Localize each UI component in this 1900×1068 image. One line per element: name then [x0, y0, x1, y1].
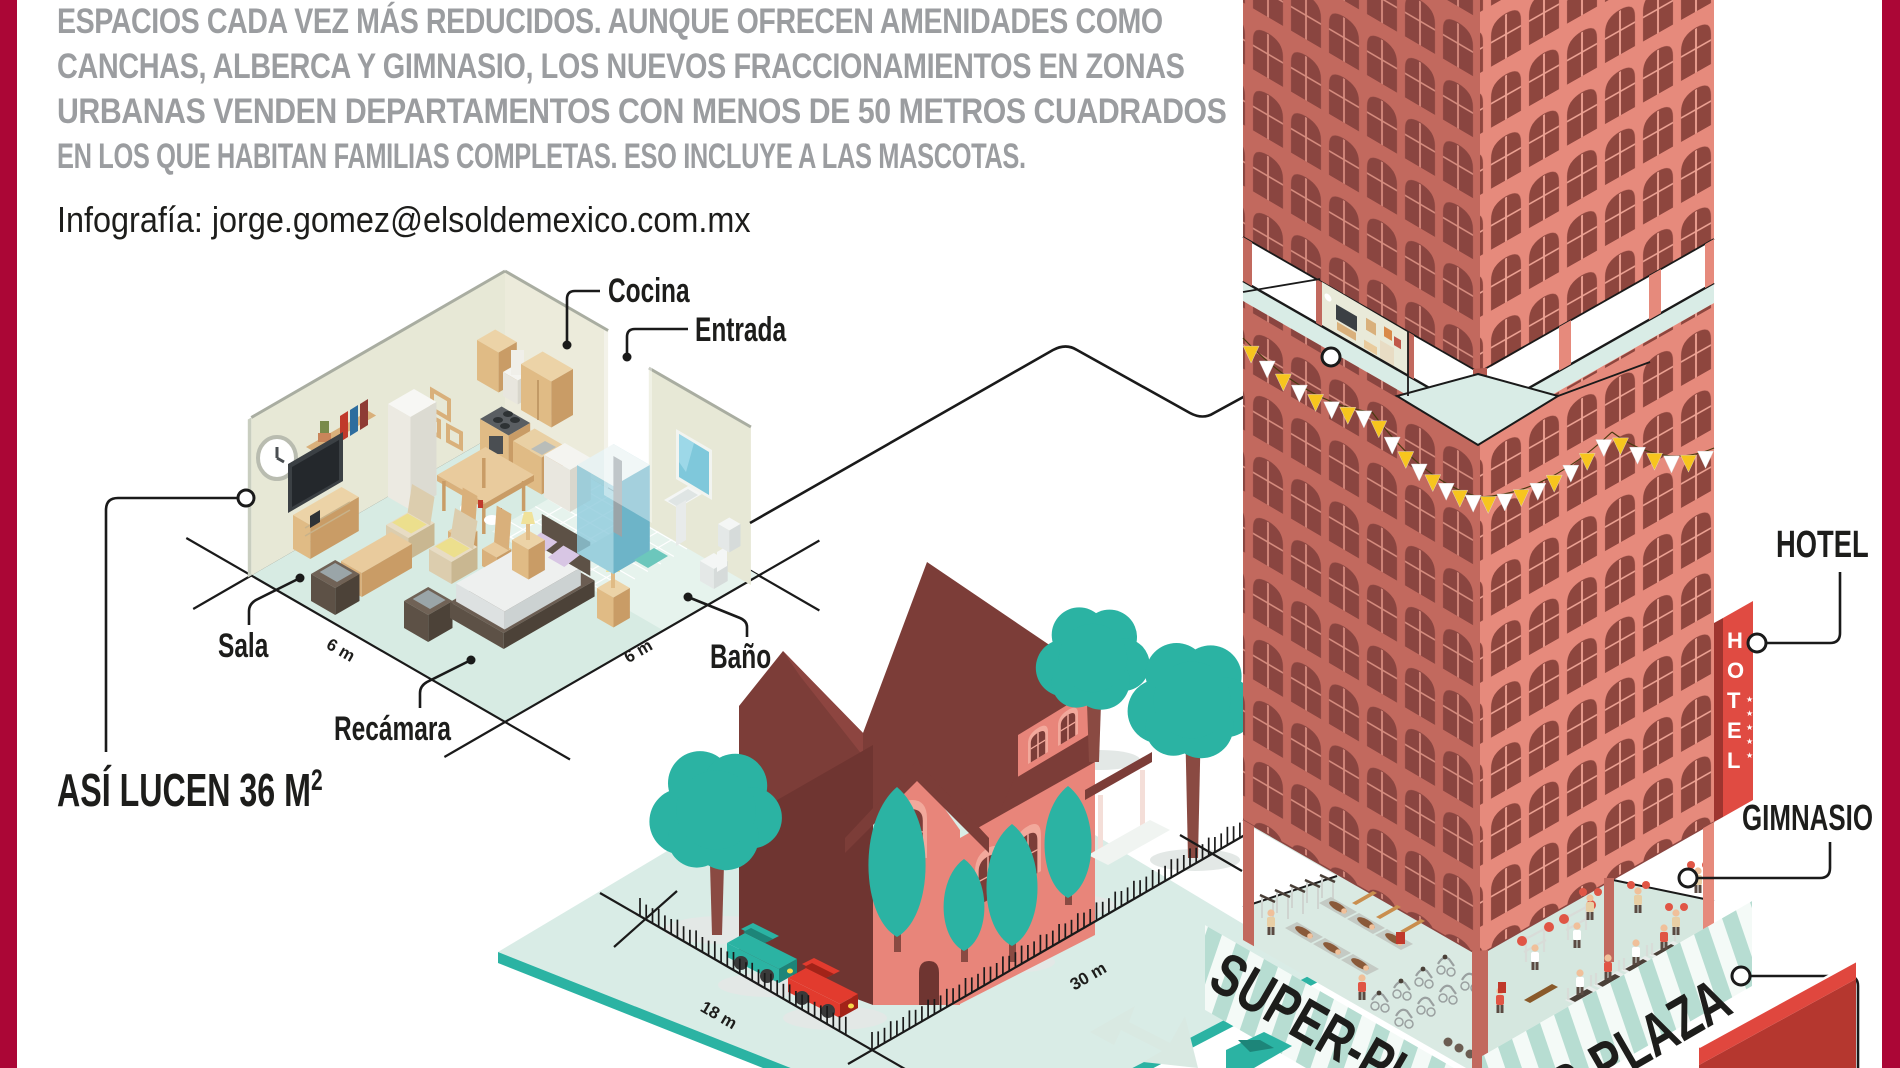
svg-text:Cocina: Cocina	[608, 272, 690, 310]
svg-text:GIMNASIO: GIMNASIO	[1742, 798, 1873, 838]
svg-text:★: ★	[1746, 737, 1753, 746]
svg-text:O: O	[1727, 658, 1744, 683]
svg-text:★: ★	[1746, 695, 1753, 704]
svg-text:EN LOS QUE HABITAN FAMILIAS CO: EN LOS QUE HABITAN FAMILIAS COMPLETAS. E…	[57, 137, 1026, 176]
svg-text:ESPACIOS CADA VEZ MÁS REDUCIDO: ESPACIOS CADA VEZ MÁS REDUCIDOS. AUNQUE …	[57, 1, 1163, 40]
svg-text:Infografía: jorge.gomez@elsold: Infografía: jorge.gomez@elsoldemexico.co…	[57, 200, 751, 240]
svg-text:URBANAS VENDEN DEPARTAMENTOS C: URBANAS VENDEN DEPARTAMENTOS CON MENOS D…	[57, 91, 1226, 131]
svg-text:T: T	[1727, 688, 1741, 713]
svg-text:Sala: Sala	[218, 627, 269, 665]
svg-text:6 m: 6 m	[323, 635, 358, 666]
svg-text:H: H	[1727, 628, 1743, 653]
svg-text:ASÍ LUCEN 36 M2: ASÍ LUCEN 36 M2	[57, 765, 323, 817]
svg-text:HOTEL: HOTEL	[1776, 524, 1869, 566]
svg-text:★: ★	[1746, 751, 1753, 760]
svg-text:Recámara: Recámara	[334, 710, 451, 748]
svg-text:CANCHAS, ALBERCA Y GIMNASIO, L: CANCHAS, ALBERCA Y GIMNASIO, LOS NUEVOS …	[57, 46, 1185, 85]
svg-text:Entrada: Entrada	[695, 311, 787, 349]
svg-text:L: L	[1727, 748, 1740, 773]
svg-text:★: ★	[1746, 709, 1753, 718]
svg-text:E: E	[1727, 718, 1742, 743]
svg-text:★: ★	[1746, 723, 1753, 732]
svg-text:Baño: Baño	[710, 638, 771, 676]
